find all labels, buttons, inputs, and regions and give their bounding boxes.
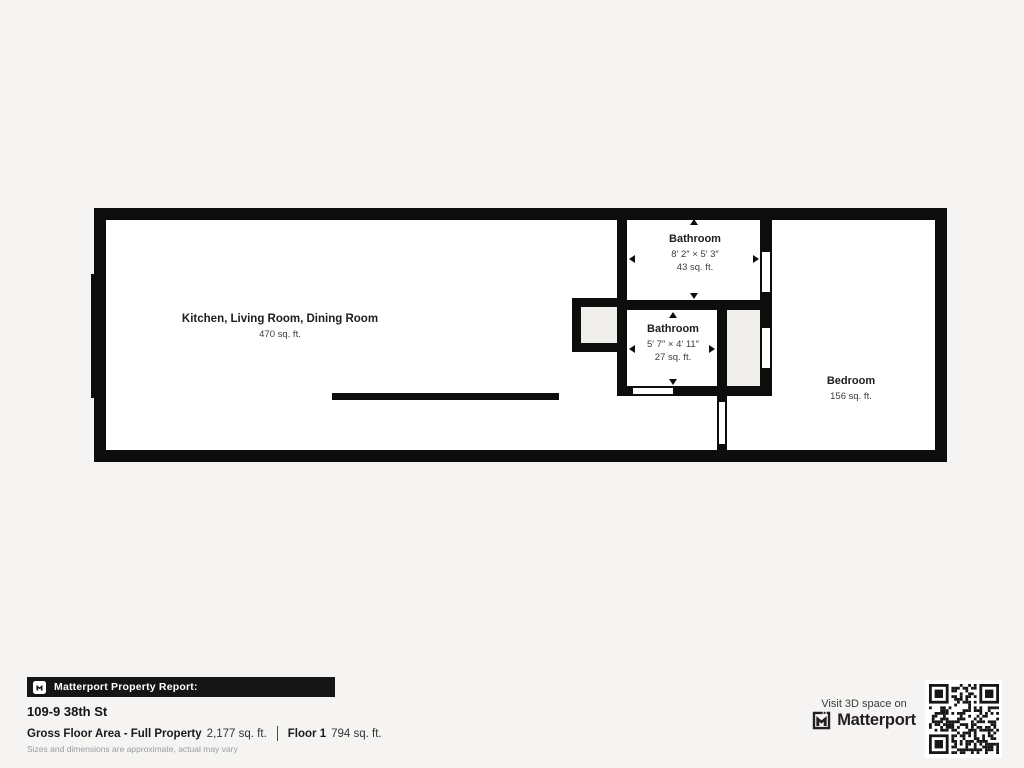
- room-name: Bathroom: [605, 322, 741, 336]
- floor-label: Floor 1: [288, 728, 326, 740]
- matterport-badge-icon: [33, 681, 46, 694]
- property-address: 109-9 38th St: [27, 704, 107, 719]
- room-area: 27 sq. ft.: [605, 351, 741, 364]
- floor-area-summary: Gross Floor Area - Full Property 2,177 s…: [27, 726, 382, 741]
- gross-area-label: Gross Floor Area - Full Property: [27, 728, 202, 740]
- wall-bathrooms-divider: [617, 300, 772, 310]
- room-dims: 5′ 7″ × 4′ 11″: [605, 338, 741, 351]
- matterport-logo-icon: [812, 711, 831, 730]
- room-name: Bathroom: [625, 232, 765, 246]
- room-name: Bedroom: [786, 374, 916, 388]
- door-opening-closet: [762, 328, 770, 368]
- dimension-arrow-down-icon: [690, 293, 698, 299]
- wall-outer-left-jog: [91, 274, 94, 398]
- wall-outer-top: [94, 208, 947, 220]
- room-label-bathroom-mid: Bathroom 5′ 7″ × 4′ 11″ 27 sq. ft.: [605, 322, 741, 364]
- wall-outer-bottom: [94, 450, 947, 462]
- room-area: 43 sq. ft.: [625, 261, 765, 274]
- room-label-bedroom: Bedroom 156 sq. ft.: [786, 374, 916, 403]
- report-banner-label: Matterport Property Report:: [54, 681, 198, 693]
- room-area: 156 sq. ft.: [786, 390, 916, 403]
- room-area: 470 sq. ft.: [130, 328, 430, 342]
- dimension-arrow-up-icon: [669, 312, 677, 318]
- visit-3d-text: Visit 3D space on: [790, 698, 938, 710]
- disclaimer-text: Sizes and dimensions are approximate, ac…: [27, 744, 238, 754]
- matterport-logo: Matterport: [790, 711, 938, 730]
- qr-code: [925, 680, 1002, 758]
- door-opening-hall: [719, 402, 725, 444]
- property-report-page: Kitchen, Living Room, Dining Room 470 sq…: [0, 0, 1024, 768]
- dimension-arrow-down-icon: [669, 379, 677, 385]
- summary-divider: [277, 726, 278, 741]
- room-name: Kitchen, Living Room, Dining Room: [130, 312, 430, 327]
- room-dims: 8′ 2″ × 5′ 3″: [625, 248, 765, 261]
- wall-outer-right: [935, 208, 947, 462]
- matterport-wordmark: Matterport: [837, 711, 916, 730]
- door-opening-bathroom-mid: [633, 388, 673, 394]
- wall-kitchen-partition: [332, 393, 559, 400]
- room-label-bathroom-top: Bathroom 8′ 2″ × 5′ 3″ 43 sq. ft.: [625, 232, 765, 274]
- dimension-arrow-up-icon: [690, 219, 698, 225]
- floor-area-value: 794 sq. ft.: [331, 728, 382, 740]
- wall-outer-left: [94, 208, 106, 462]
- gross-area-value: 2,177 sq. ft.: [207, 728, 267, 740]
- room-label-main: Kitchen, Living Room, Dining Room 470 sq…: [130, 312, 430, 342]
- report-banner: Matterport Property Report:: [27, 677, 335, 697]
